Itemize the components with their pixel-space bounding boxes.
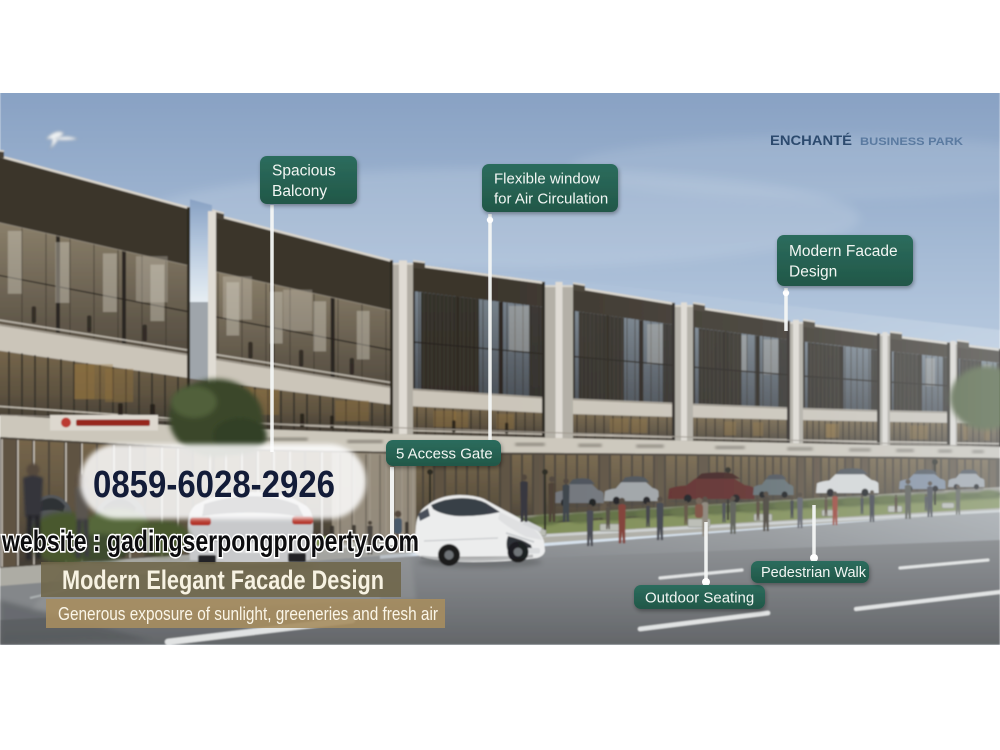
svg-text:Design: Design: [789, 263, 837, 280]
svg-text:5 Access Gate: 5 Access Gate: [396, 445, 493, 462]
svg-text:Outdoor Seating: Outdoor Seating: [645, 589, 754, 606]
svg-text:Modern Elegant Facade Design: Modern Elegant Facade Design: [62, 565, 384, 595]
svg-text:ENCHANTÉ: ENCHANTÉ: [770, 133, 852, 148]
svg-text:0859-6028-2926: 0859-6028-2926: [93, 464, 335, 506]
svg-text:BUSINESS PARK: BUSINESS PARK: [860, 136, 963, 148]
svg-text:Spacious: Spacious: [272, 162, 336, 179]
svg-text:website : gadingserpongpropert: website : gadingserpongproperty.com: [1, 525, 419, 558]
svg-text:Modern Facade: Modern Facade: [789, 243, 898, 260]
svg-text:Pedestrian Walk: Pedestrian Walk: [761, 565, 867, 581]
svg-text:Generous exposure of sunlight,: Generous exposure of sunlight, greenerie…: [58, 603, 438, 624]
svg-text:Balcony: Balcony: [272, 183, 327, 200]
svg-text:for Air Circulation: for Air Circulation: [494, 190, 608, 207]
svg-text:Flexible window: Flexible window: [494, 170, 600, 187]
